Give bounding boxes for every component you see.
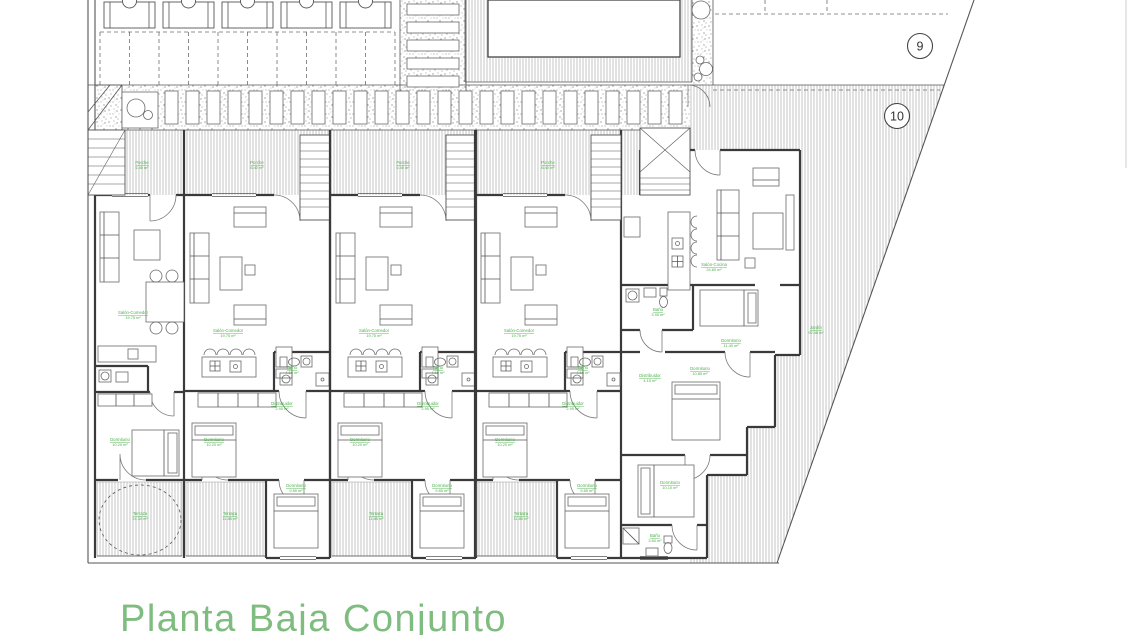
future-bay-dashes	[715, 0, 948, 14]
stepping-stone	[501, 91, 514, 124]
stepping-stone	[333, 91, 346, 124]
stepping-stone	[207, 91, 220, 124]
stepping-stone	[375, 91, 388, 124]
stepping-stone	[543, 91, 556, 124]
stepping-stone	[480, 91, 493, 124]
room-area-label: 92.40 m²	[808, 330, 824, 335]
room-area-label: 10.85 m²	[692, 371, 708, 376]
room-area-label: 11.85 m²	[222, 516, 238, 521]
stepping-stone	[585, 91, 598, 124]
stepping-stone	[627, 91, 640, 124]
walkway-gravel	[95, 85, 690, 130]
room-area-label: 6.40 m²	[135, 165, 149, 170]
stepping-stone	[564, 91, 577, 124]
carports	[104, 0, 391, 28]
room-area-label: 9.85 m²	[435, 488, 449, 493]
stepping-stone	[186, 91, 199, 124]
corner-entry-stair	[640, 128, 690, 195]
stepping-stone	[407, 40, 459, 51]
stepping-stone	[522, 91, 535, 124]
room-area-label: 2.95 m²	[566, 406, 580, 411]
room-area-label: 10.20 m²	[497, 442, 513, 447]
room-area-label: 19.75 m²	[366, 333, 382, 338]
plot-marker-10-label: 10	[890, 110, 904, 124]
room-area-label: 4.10 m²	[576, 370, 590, 375]
room-area-label: 10.20 m²	[112, 442, 128, 447]
stepping-stone	[396, 91, 409, 124]
room-area-label: 4.15 m²	[643, 378, 657, 383]
room-area-label: 6.40 m²	[541, 165, 555, 170]
room-area-label: 19.75 m²	[511, 333, 527, 338]
parking-bays	[100, 32, 395, 88]
porch-hatch	[125, 130, 640, 195]
room-area-label: 9.85 m²	[289, 488, 303, 493]
stepping-stone	[606, 91, 619, 124]
stepping-stone	[407, 58, 459, 69]
room-area-label: 10.20 m²	[206, 442, 222, 447]
stepping-stone	[249, 91, 262, 124]
stepping-stone	[354, 91, 367, 124]
room-area-label: 10.20 m²	[352, 442, 368, 447]
plot-marker-9: 9	[908, 34, 933, 59]
room-area-label: 4.10 m²	[285, 370, 299, 375]
room-area-label: 10.10 m²	[662, 485, 678, 490]
stepping-stone	[270, 91, 283, 124]
room-area-label: 19.75 m²	[125, 315, 141, 320]
room-area-label: 3.60 m²	[648, 538, 662, 543]
stepping-stone	[407, 76, 459, 87]
room-area-label: 2.95 m²	[421, 406, 435, 411]
stepping-stone	[417, 91, 430, 124]
floor-plan-drawing: 9 10 Porche6.40 m²Salón-Comedor19.75 m²D…	[0, 0, 1130, 635]
stepping-stone	[407, 4, 459, 15]
stepping-stone	[669, 91, 682, 124]
stepping-stone	[165, 91, 178, 124]
plot-marker-9-label: 9	[917, 40, 924, 54]
room-area-label: 24.30 m²	[132, 516, 148, 521]
stepping-stone	[648, 91, 661, 124]
room-area-label: 9.85 m²	[580, 488, 594, 493]
room-area-label: 3.95 m²	[651, 312, 665, 317]
stepping-stone	[407, 22, 459, 33]
stepping-stone	[438, 91, 451, 124]
room-area-label: 11.40 m²	[723, 343, 739, 348]
room-area-label: 11.85 m²	[368, 516, 384, 521]
stepping-stone	[459, 91, 472, 124]
stepping-stone	[228, 91, 241, 124]
stepping-stone	[312, 91, 325, 124]
room-area-label: 19.75 m²	[220, 333, 236, 338]
plot-boundary	[88, 0, 1126, 563]
room-area-label: 6.40 m²	[250, 165, 264, 170]
floor-plan-sheet: 9 10 Porche6.40 m²Salón-Comedor19.75 m²D…	[0, 0, 1130, 635]
room-area-label: 6.40 m²	[396, 165, 410, 170]
room-area-label: 2.95 m²	[275, 406, 289, 411]
drawing-title: Planta Baja Conjunto	[120, 598, 507, 635]
room-area-label: 4.10 m²	[431, 370, 445, 375]
swimming-pool	[488, 0, 680, 57]
stepping-stone	[291, 91, 304, 124]
room-area-label: 24.60 m²	[706, 267, 722, 272]
room-area-label: 11.85 m²	[513, 516, 529, 521]
plot-marker-10: 10	[885, 104, 910, 129]
